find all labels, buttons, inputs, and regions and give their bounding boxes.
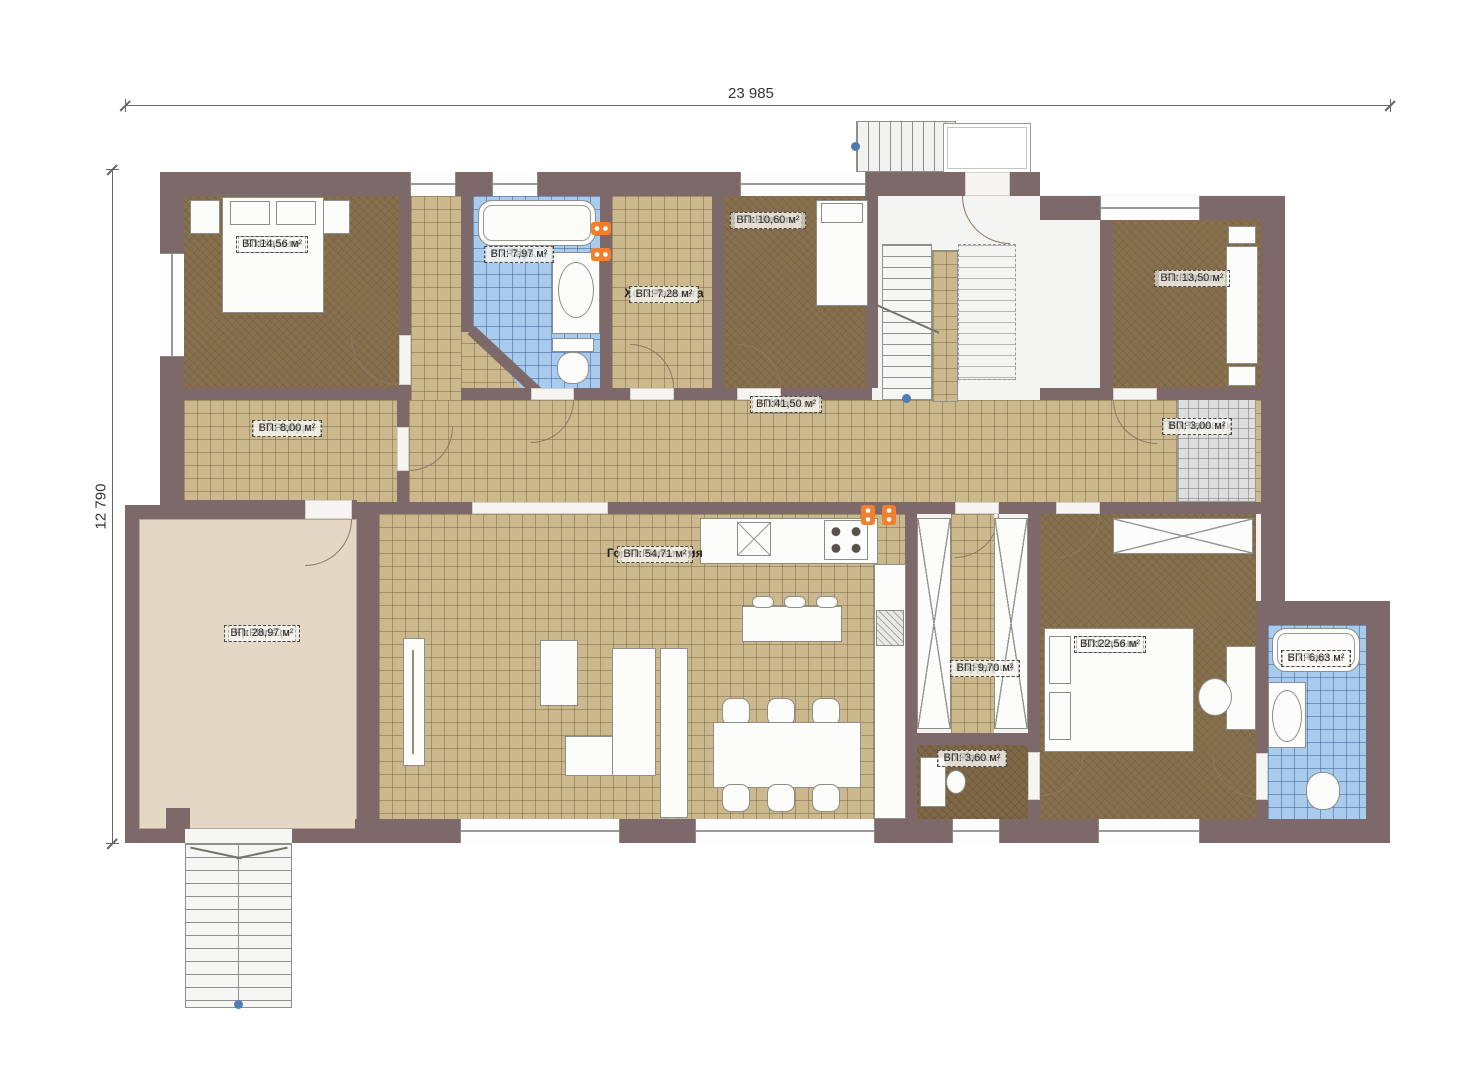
bathtub — [478, 200, 596, 246]
room-area: ВП: 9,70 м² — [950, 660, 1019, 677]
wall — [1040, 388, 1113, 400]
porch-stair-opening — [185, 829, 292, 843]
door-gap — [965, 172, 1010, 196]
wall — [917, 733, 1028, 745]
nightstand — [190, 200, 220, 234]
room-area: ВП: 3,60 м² — [937, 750, 1006, 767]
bar-stool — [752, 596, 774, 608]
wall — [1028, 514, 1040, 752]
radiator-icon — [861, 505, 875, 525]
wall — [1028, 800, 1040, 819]
bed-single — [1226, 246, 1258, 364]
desk-chair — [946, 770, 966, 794]
pillow — [230, 201, 270, 225]
floor-lift — [1177, 397, 1256, 502]
window — [952, 819, 1000, 843]
window — [1100, 196, 1200, 220]
chair — [812, 784, 840, 812]
floor-plan: 23 985 12 790 Спальня FixPlans.ru ВП:14,… — [0, 0, 1474, 1080]
bar-stool — [784, 596, 806, 608]
room-area: ВП: 7,28 м² — [629, 286, 698, 303]
kitchen-island — [742, 606, 842, 642]
reference-dot — [902, 394, 911, 403]
door-gap — [630, 388, 674, 400]
stair-center-line — [238, 843, 239, 1008]
tv-screen — [412, 650, 414, 754]
toilet-bowl — [1306, 772, 1340, 810]
tv-unit — [403, 638, 425, 766]
wall — [357, 505, 379, 819]
chair — [722, 784, 750, 812]
window — [410, 172, 456, 196]
stair-flight-lower — [882, 244, 932, 400]
wall — [397, 471, 409, 502]
sofa — [612, 648, 656, 776]
stool-round — [1198, 678, 1232, 716]
window — [160, 253, 184, 357]
window — [1098, 819, 1200, 843]
wall — [357, 502, 472, 514]
porch-wall — [125, 505, 174, 519]
door-gap — [397, 427, 409, 471]
dimension-width-label: 23 985 — [728, 85, 774, 102]
wall — [1256, 800, 1268, 819]
floor-vestibule — [184, 400, 397, 502]
kitchen-counter-right — [874, 564, 906, 819]
wall — [461, 388, 531, 400]
nightstand — [1228, 366, 1256, 386]
bar-stool — [816, 596, 838, 608]
wall — [1366, 601, 1390, 843]
chair — [767, 784, 795, 812]
dimension-line-left — [112, 169, 113, 843]
radiator-icon — [882, 505, 896, 525]
terrace-outline-inner — [947, 127, 1027, 169]
door-gap — [1113, 388, 1157, 400]
window — [460, 819, 620, 843]
door-gap — [305, 500, 352, 519]
dim-end — [106, 169, 119, 170]
wall — [999, 502, 1056, 514]
room-area: ВП: 8,00 м² — [252, 420, 321, 437]
window — [492, 172, 538, 196]
window — [740, 172, 866, 196]
dimension-line-top — [125, 105, 1390, 106]
toilet — [552, 338, 594, 352]
wardrobe-cabinet — [994, 518, 1028, 729]
wall — [674, 388, 737, 400]
door-gap — [1056, 502, 1100, 514]
sink-oval — [558, 262, 594, 318]
wall — [608, 502, 955, 514]
room-area: ВП:41,50 м² — [750, 396, 822, 413]
wall — [1100, 220, 1112, 388]
dim-end — [125, 99, 126, 112]
door-gap — [955, 502, 999, 514]
kitchen-sink — [737, 522, 771, 556]
wardrobe-cabinet — [917, 518, 951, 729]
dim-end — [106, 843, 119, 844]
wall — [574, 388, 630, 400]
pillow — [276, 201, 316, 225]
wardrobe-cabinet — [1113, 518, 1253, 554]
door-gap — [1256, 753, 1268, 800]
dining-table — [713, 722, 861, 788]
dimension-height-label: 12 790 — [92, 484, 109, 530]
wall — [397, 400, 409, 427]
room-area: ВП: 28,97 м² — [224, 625, 299, 642]
nightstand — [320, 200, 350, 234]
door-gap — [1028, 752, 1040, 800]
wall — [712, 196, 724, 388]
room-area: ВП: 6,63 м² — [1281, 650, 1350, 667]
wall — [905, 514, 917, 819]
stair-flight-upper-dashed — [958, 244, 1016, 380]
pillow — [821, 203, 863, 223]
room-area: ВП:22,56 м² — [1074, 636, 1146, 653]
room-area: ВП: 54,71 м² — [617, 546, 692, 563]
opening-hall-living — [472, 502, 608, 514]
door-gap — [531, 388, 574, 400]
console-panel — [660, 648, 688, 818]
room-area: ВП:14,56 м² — [236, 236, 308, 253]
wall — [399, 385, 411, 400]
floor-corridor-north — [411, 196, 461, 402]
oven-appliance — [876, 610, 904, 646]
door-gap — [399, 335, 411, 385]
sink-oval — [1272, 690, 1302, 742]
room-area: ВП: 10,60 м² — [730, 212, 805, 229]
pillow — [1049, 692, 1071, 740]
stair-core — [932, 250, 958, 402]
wall — [399, 196, 411, 335]
dim-end — [1390, 99, 1391, 112]
wall — [160, 172, 1040, 196]
window — [695, 819, 875, 843]
floor-porch — [139, 519, 357, 829]
room-area: ВП: 3,00 м² — [1162, 418, 1231, 435]
room-area: ВП: 13,50 м² — [1154, 270, 1229, 287]
nightstand — [1228, 226, 1256, 244]
wall — [1100, 502, 1261, 514]
exterior-stair-top — [856, 121, 956, 172]
room-area: ВП: 7,97 м² — [484, 246, 553, 263]
wall — [1157, 388, 1261, 400]
pillow — [1049, 636, 1071, 684]
coffee-table — [540, 640, 578, 706]
wall — [1261, 196, 1285, 625]
notch-cover — [1040, 168, 1285, 195]
stove — [824, 520, 868, 560]
wall — [461, 196, 473, 332]
porch-wall — [125, 505, 139, 843]
reference-dot — [851, 142, 860, 151]
dresser — [1226, 646, 1256, 730]
toilet-bowl — [557, 352, 589, 384]
reference-dot — [234, 1000, 243, 1009]
radiator-icon — [591, 248, 611, 261]
wall — [1256, 625, 1268, 753]
sofa-chaise — [565, 736, 613, 776]
wall — [160, 388, 411, 400]
radiator-icon — [591, 222, 611, 235]
